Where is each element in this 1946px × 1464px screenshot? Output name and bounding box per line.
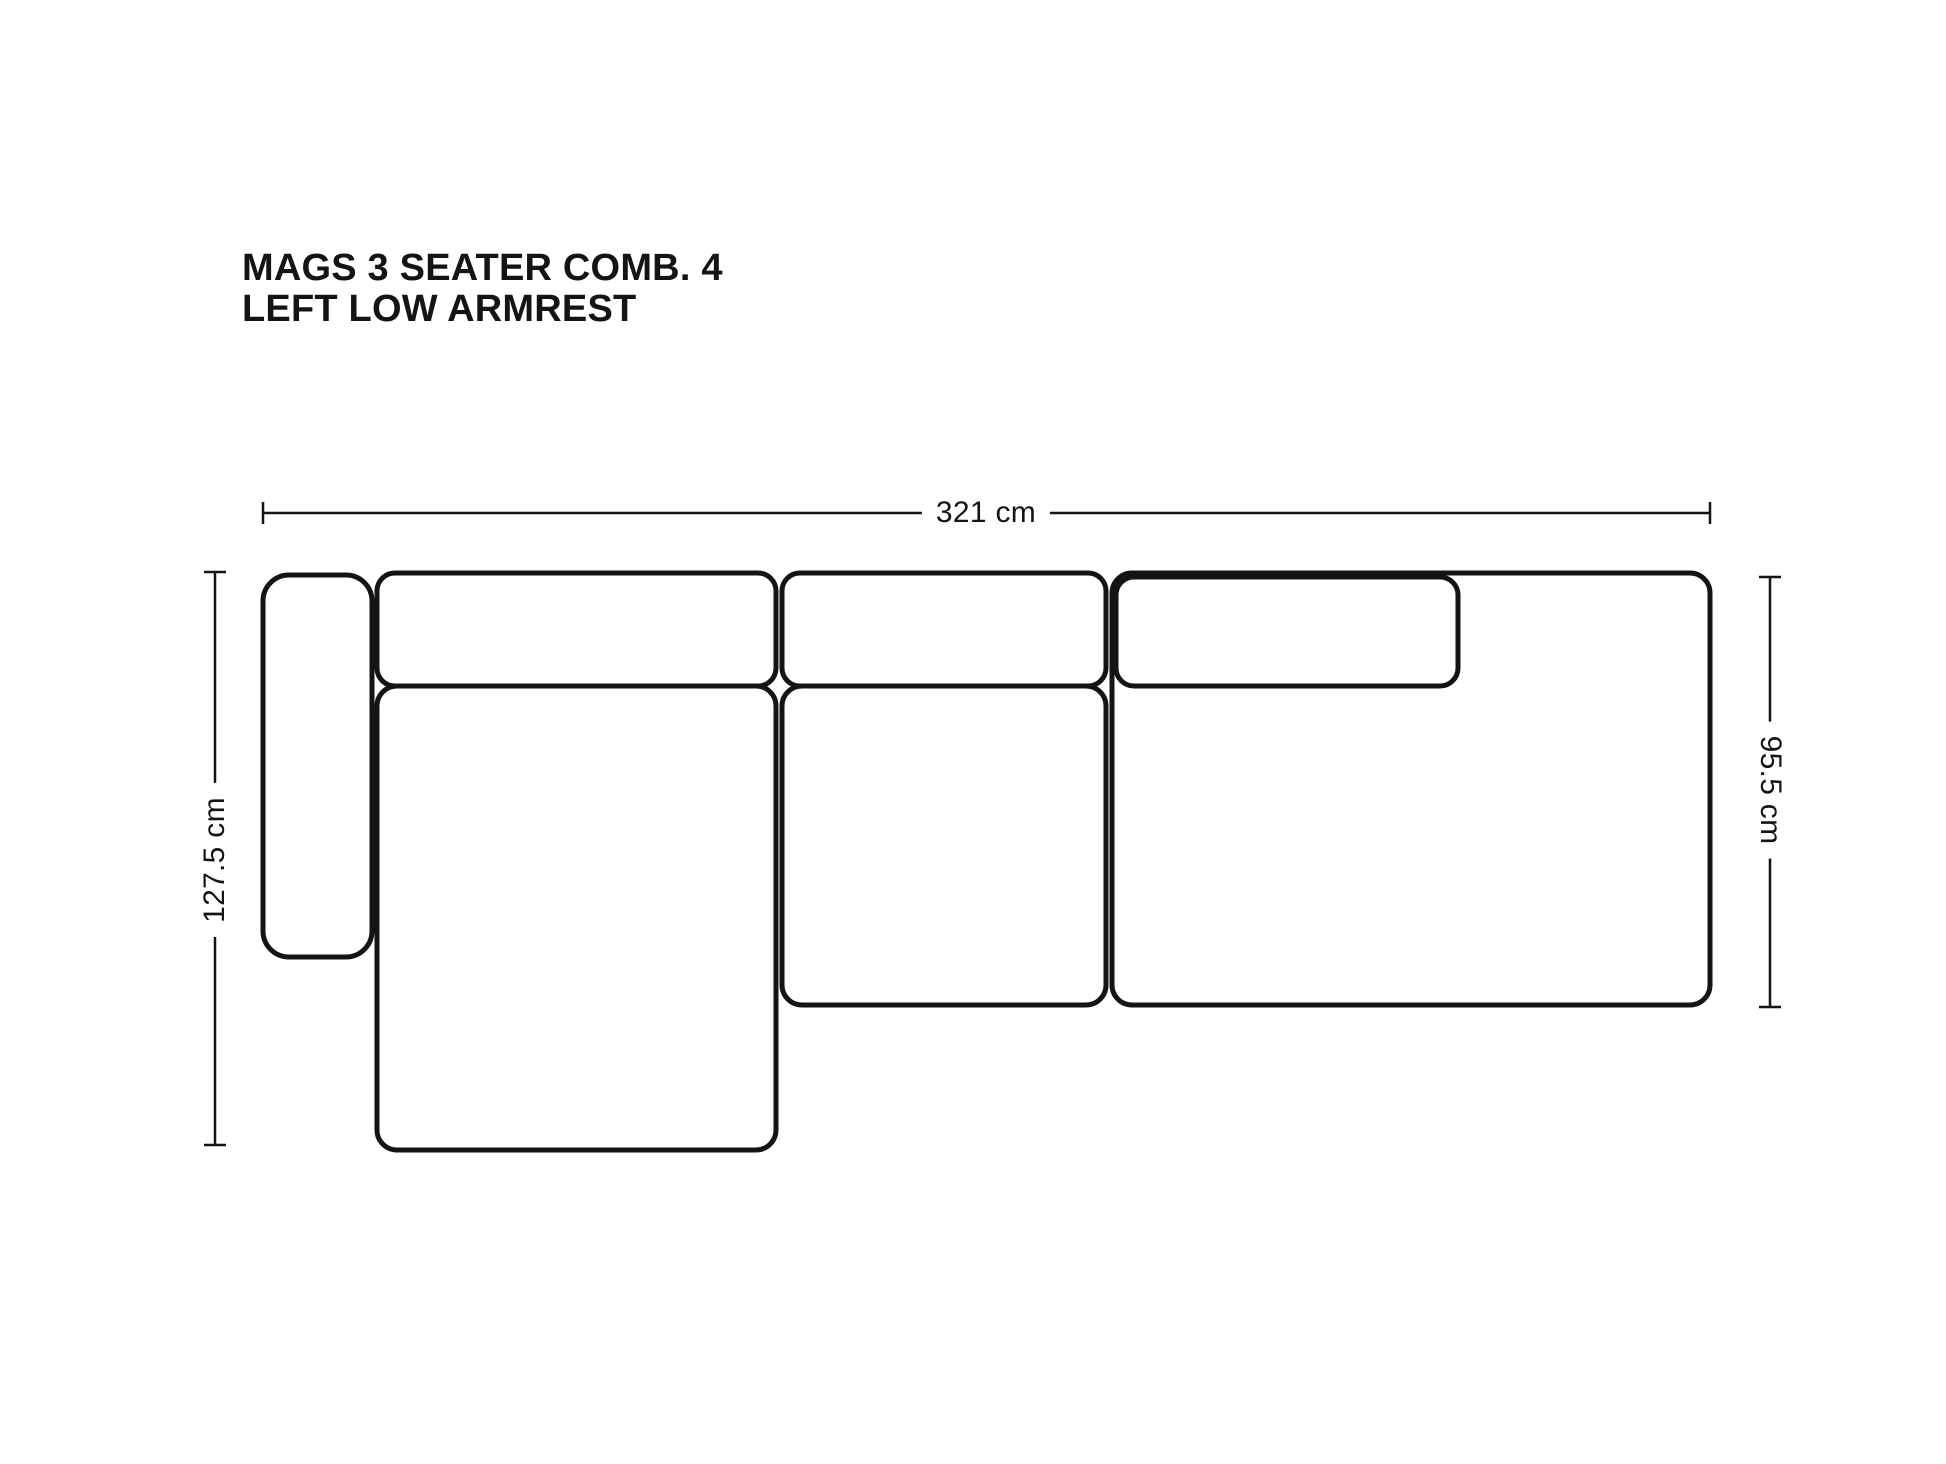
sofa-dimension-diagram: MAGS 3 SEATER COMB. 4 LEFT LOW ARMREST [0,0,1946,1464]
width-dimension-label: 321 cm [922,494,1050,532]
chaise-depth-dimension-label: 127.5 cm [196,783,234,937]
chaise-back-cushion-outline [377,573,776,686]
left-armrest-outline [263,575,372,957]
middle-seat-outline [782,686,1106,1005]
right-back-cushion-outline [1116,577,1458,686]
middle-back-cushion-outline [782,573,1106,686]
sofa-outline-drawing [0,0,1946,1464]
seat-depth-dimension-label: 95.5 cm [1751,722,1789,859]
chaise-seat-outline [377,686,776,1150]
